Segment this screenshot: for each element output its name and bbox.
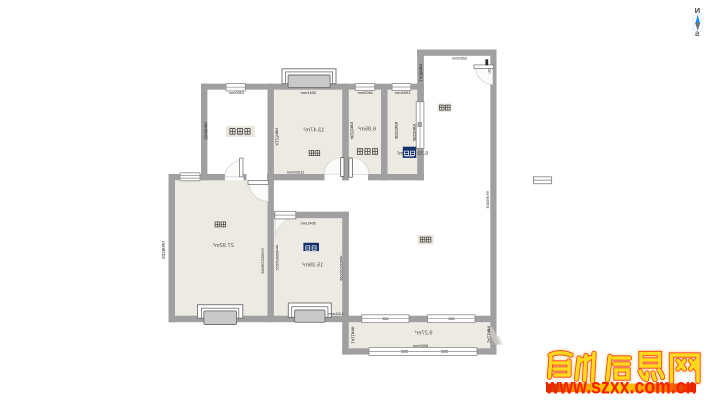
svg-text:4022mm: 4022mm — [350, 122, 355, 140]
svg-text:9.27m²: 9.27m² — [415, 331, 433, 337]
svg-text:10600mm: 10600mm — [485, 190, 490, 208]
svg-text:3040mm: 3040mm — [204, 122, 209, 140]
svg-text:6000mm: 6000mm — [412, 343, 428, 348]
svg-text:1594mm: 1594mm — [394, 90, 410, 95]
svg-text:3600/2200mm: 3600/2200mm — [261, 248, 266, 274]
svg-text:1411mm: 1411mm — [350, 326, 355, 343]
svg-text:13.47m²: 13.47m² — [303, 128, 324, 134]
svg-text:6.85m²: 6.85m² — [358, 126, 376, 132]
svg-text:6.39: 6.39 — [417, 151, 428, 157]
svg-text:4022mm: 4022mm — [394, 122, 399, 140]
svg-text:1600mm: 1600mm — [357, 90, 373, 95]
svg-text:6320mm: 6320mm — [161, 241, 166, 259]
svg-text:2200/3600mm: 2200/3600mm — [275, 244, 280, 270]
svg-text:4000/2200mm: 4000/2200mm — [339, 255, 344, 281]
svg-text:3283mm: 3283mm — [451, 56, 467, 61]
svg-text:27.92m²: 27.92m² — [213, 243, 234, 249]
svg-text:3041mm: 3041mm — [300, 90, 316, 95]
svg-text:1411mm: 1411mm — [328, 311, 344, 316]
svg-text:N: N — [695, 6, 700, 15]
svg-text:3041mm: 3041mm — [300, 220, 316, 225]
svg-text:4127mm: 4127mm — [275, 128, 280, 146]
svg-text:15.39m²: 15.39m² — [302, 263, 323, 269]
svg-text:1430mm: 1430mm — [419, 64, 424, 82]
svg-text:m²: m² — [397, 151, 404, 157]
svg-text:1411mm: 1411mm — [486, 326, 491, 343]
svg-text:S: S — [694, 31, 699, 38]
svg-text:750: 750 — [487, 68, 491, 73]
svg-text:11000mm: 11000mm — [286, 169, 304, 174]
svg-text:4022mm: 4022mm — [412, 124, 417, 142]
svg-text:www.szxx.com.cn: www.szxx.com.cn — [545, 374, 697, 398]
svg-text:2300mm: 2300mm — [228, 90, 244, 95]
